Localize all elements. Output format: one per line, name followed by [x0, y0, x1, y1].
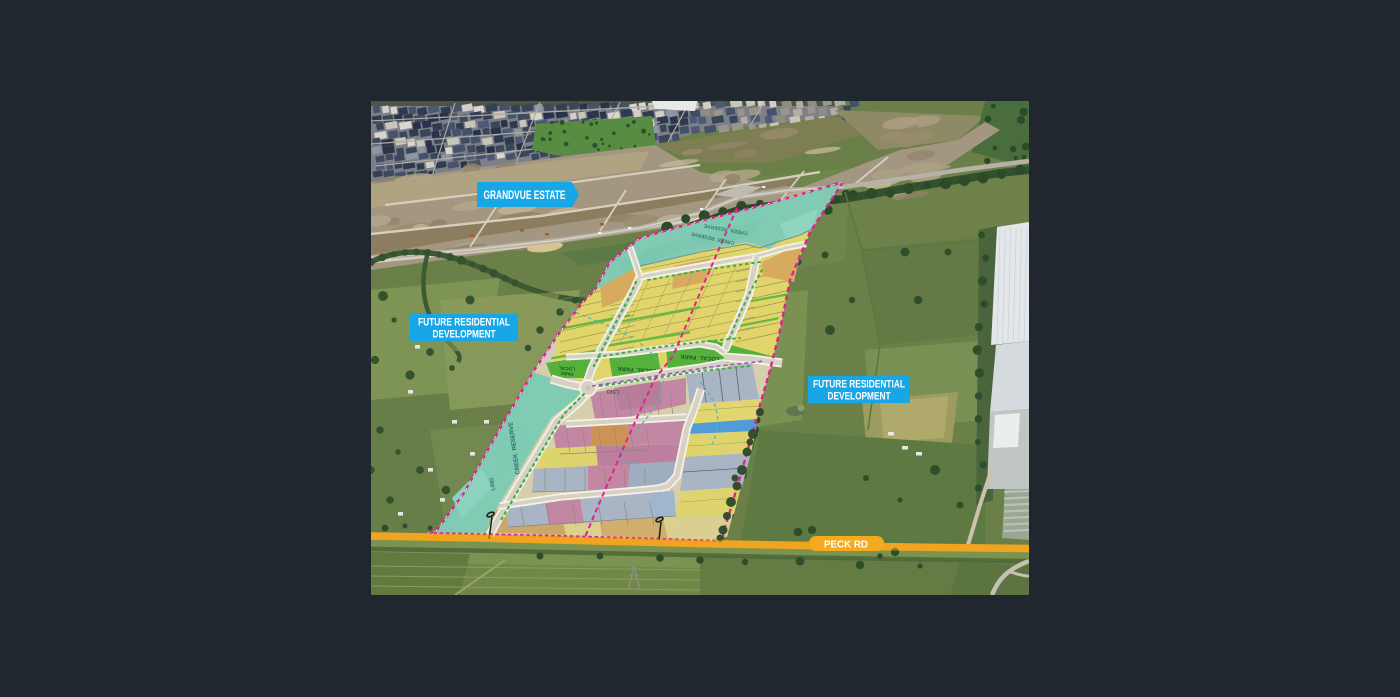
svg-text:LSIO: LSIO [606, 388, 620, 395]
svg-text:PARK: PARK [560, 370, 574, 377]
svg-text:FUTURE RESIDENTIAL: FUTURE RESIDENTIAL [813, 378, 905, 390]
svg-text:PECK RD: PECK RD [824, 539, 868, 551]
svg-text:DEVELOPMENT: DEVELOPMENT [433, 329, 496, 341]
svg-text:DEVELOPMENT: DEVELOPMENT [828, 391, 891, 403]
svg-text:FUTURE RESIDENTIAL: FUTURE RESIDENTIAL [418, 316, 510, 328]
svg-text:GRANDVUE ESTATE: GRANDVUE ESTATE [484, 190, 566, 202]
